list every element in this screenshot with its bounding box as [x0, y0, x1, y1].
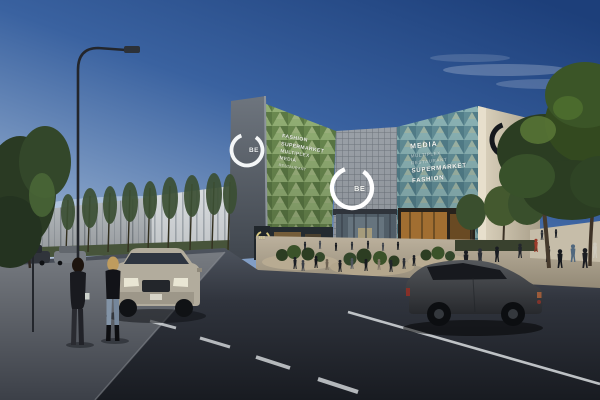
- coffee-cup: [85, 293, 90, 300]
- storefront-sign-label: BE: [259, 235, 265, 240]
- right-facade-text: MEDIA MULTIPLEX RESTAURANT SUPERMARKET F…: [410, 135, 482, 186]
- scene: BE BE BE FASHION SUPERMARKET MULTIPLEX M…: [0, 0, 600, 400]
- entrance-logo-label: BE: [354, 184, 365, 193]
- tower-logo-label: BE: [249, 147, 259, 154]
- taillight: [406, 288, 410, 296]
- scene-graphic: [0, 0, 600, 400]
